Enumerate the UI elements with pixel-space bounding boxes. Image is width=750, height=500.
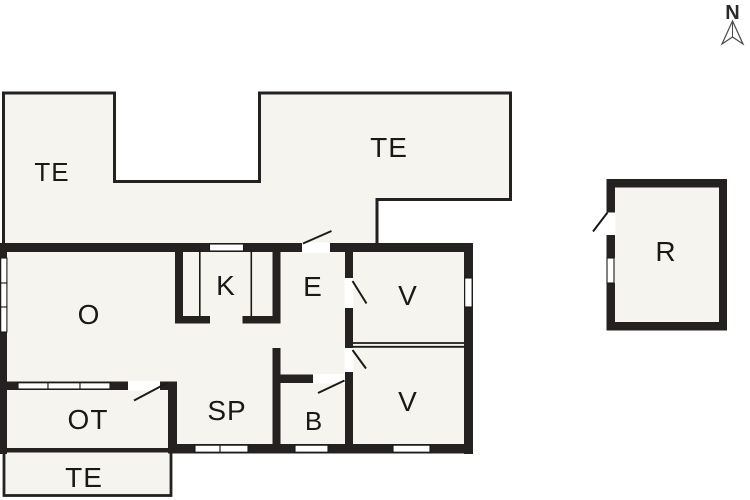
room-label-v-lower: V	[398, 386, 418, 417]
room-label-o: O	[78, 299, 101, 330]
annex-door-swing	[593, 213, 608, 232]
wall-kitchen-east-return	[243, 316, 281, 324]
annex-wall-south	[607, 322, 728, 331]
floor-plan-canvas: N TE TE O K E V V SP B OT TE R	[0, 0, 750, 500]
wall-east	[464, 243, 473, 454]
wall-ot-east	[168, 382, 177, 454]
wall-kitchen-east	[273, 250, 281, 323]
room-label-te-north-east: TE	[370, 132, 408, 163]
wall-ot-te-divider	[0, 448, 170, 453]
room-label-te-north-west: TE	[34, 157, 69, 187]
north-terrace-outline	[4, 93, 511, 245]
compass: N	[722, 2, 743, 44]
annex-wall-west-1	[607, 179, 616, 213]
annex-door-opening	[606, 213, 616, 236]
window-north	[210, 244, 244, 251]
annex-wall-west-3	[607, 283, 616, 331]
north-terrace	[4, 93, 511, 245]
window-west-3	[1, 307, 7, 332]
window-o-ot-2	[48, 383, 80, 389]
door-v-lower-opening	[345, 348, 354, 372]
annex-wall-north	[607, 179, 728, 188]
wall-e-v-mid	[345, 308, 353, 348]
room-label-k: K	[216, 270, 236, 301]
wall-e-v-upper	[345, 250, 353, 278]
room-label-e: E	[303, 271, 323, 302]
room-label-sp: SP	[207, 395, 246, 426]
window-o-ot-1	[18, 383, 48, 389]
window-south-4	[393, 445, 430, 452]
wall-kitchen-west-return	[175, 316, 210, 324]
room-label-r: R	[655, 236, 676, 267]
room-label-v-upper: V	[398, 280, 418, 311]
annex-wall-east	[719, 179, 727, 331]
room-label-te-south: TE	[65, 462, 103, 493]
wall-sp-b	[273, 348, 281, 446]
window-south-3	[295, 445, 328, 452]
wall-b-north	[281, 375, 314, 384]
window-east	[465, 278, 472, 307]
window-west-2	[1, 283, 7, 307]
room-label-b: B	[305, 406, 323, 436]
door-v-upper-opening	[345, 278, 354, 308]
wall-e-v-lower	[345, 372, 353, 444]
door-front-opening	[302, 243, 330, 254]
window-south-1	[195, 445, 220, 452]
annex-wall-west-2	[607, 235, 616, 258]
window-west-1	[1, 258, 7, 283]
annex-window-west	[607, 258, 614, 283]
wall-kitchen-west	[175, 250, 183, 323]
floor-plan-drawing: N TE TE O K E V V SP B OT TE R	[0, 0, 750, 500]
room-label-ot: OT	[68, 404, 109, 435]
window-south-2	[220, 445, 248, 452]
window-o-ot-3	[80, 383, 110, 389]
